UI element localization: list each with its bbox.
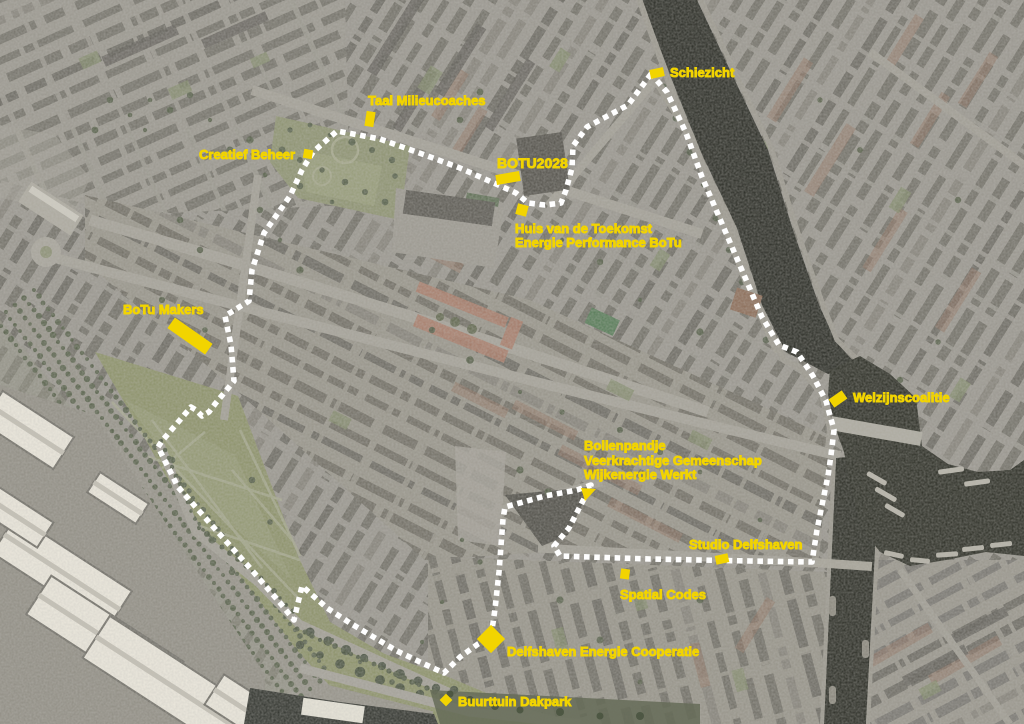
svg-text:Huis van de Toekomst: Huis van de Toekomst [515, 221, 653, 236]
svg-text:Bollenpandje: Bollenpandje [584, 438, 666, 453]
svg-text:Delfshaven Energie Cooperatie: Delfshaven Energie Cooperatie [507, 644, 699, 659]
svg-text:Taal Milieucoaches: Taal Milieucoaches [368, 93, 486, 108]
svg-text:Welzijnscoalitie: Welzijnscoalitie [853, 390, 950, 405]
svg-text:Creatief Beheer: Creatief Beheer [199, 147, 295, 162]
svg-text:Energie Performance BoTu: Energie Performance BoTu [515, 235, 682, 250]
svg-text:BOTU2028: BOTU2028 [497, 155, 568, 171]
svg-text:Schiezicht: Schiezicht [670, 65, 735, 80]
svg-text:Veerkrachtige Gemeenschap: Veerkrachtige Gemeenschap [584, 453, 762, 468]
svg-text:Buurttuin Dakpark: Buurttuin Dakpark [458, 694, 572, 709]
svg-text:Wijkenergie Werkt: Wijkenergie Werkt [584, 467, 697, 482]
svg-text:BoTu Makers: BoTu Makers [123, 302, 204, 317]
svg-text:Spatial Codes: Spatial Codes [620, 587, 706, 602]
svg-text:Studio Delfshaven: Studio Delfshaven [689, 537, 802, 552]
